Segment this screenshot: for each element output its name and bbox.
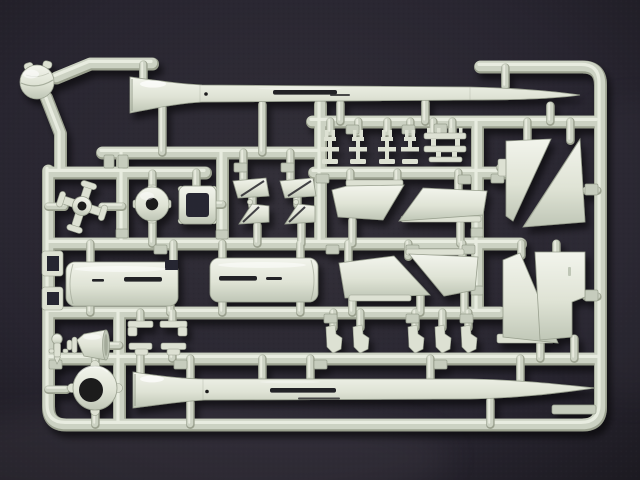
sprue-photo: [0, 0, 640, 480]
photo-stage: [0, 0, 640, 480]
